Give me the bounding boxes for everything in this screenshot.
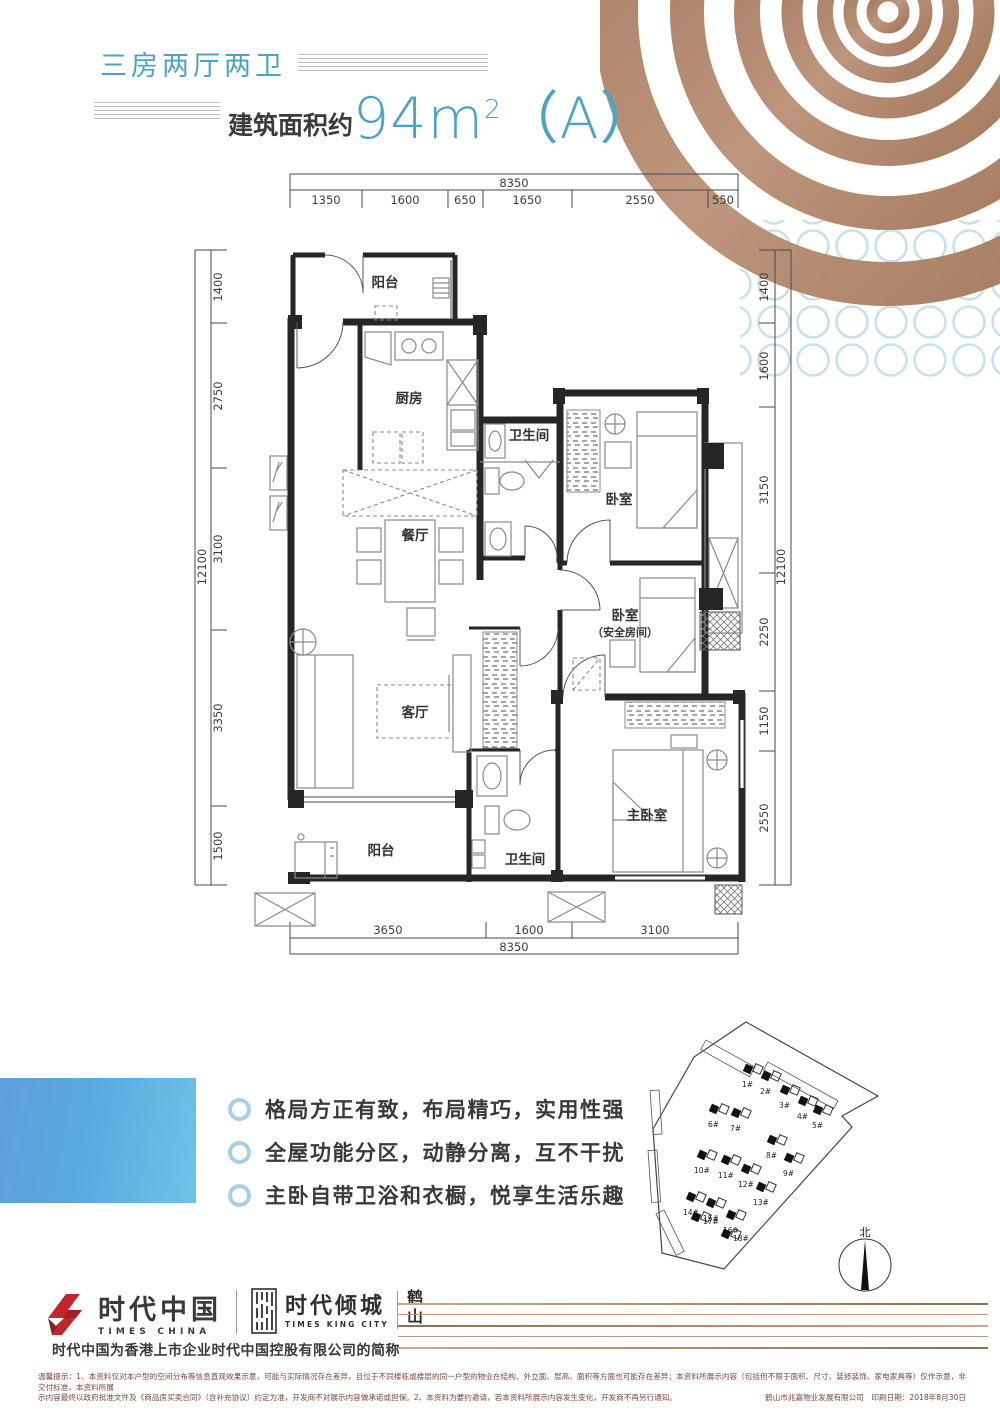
site-plan: 1# 2# 3# 4# 5# 6# 7# 8# 9# 10# 11# 12# 1… [630, 1010, 950, 1300]
label-bedroom2: 卧室 [612, 607, 640, 624]
area-label: 建筑面积约 [228, 106, 353, 148]
svg-text:8350: 8350 [499, 940, 528, 954]
decor-lines-2 [94, 102, 220, 122]
brand-divider [236, 1290, 237, 1334]
site-buildings: 1# 2# 3# 4# 5# 6# 7# 8# 9# 10# 11# 12# 1… [683, 1060, 833, 1243]
svg-text:3350: 3350 [211, 703, 225, 732]
disclaimer-line1: 温馨提示：1、本资料仅对本户型的空间分布等信息直观效果示意，可能与实际情况存在差… [38, 1372, 966, 1393]
label-bath2: 卫生间 [505, 851, 546, 868]
svg-text:13#: 13# [753, 1198, 769, 1207]
svg-text:2250: 2250 [757, 617, 771, 646]
label-bath1: 卫生间 [509, 427, 550, 444]
feature-item: 主卧自带卫浴和衣橱，悦享生活乐趣 [228, 1180, 625, 1210]
brand1: 时代中国 TIMES CHINA [98, 1288, 222, 1337]
disclaimer-line2: 鹤山市兆嘉物业发展有限公司 印刷日期：2018年8月30日 示内容最终以政府批准… [38, 1393, 966, 1404]
times-king-city-seal [251, 1288, 277, 1334]
svg-text:8350: 8350 [499, 176, 528, 190]
feature-item: 格局方正有致，布局精巧，实用性强 [228, 1094, 625, 1124]
svg-text:6#: 6# [708, 1120, 719, 1129]
svg-text:8#: 8# [766, 1151, 777, 1160]
svg-text:12100: 12100 [774, 549, 788, 586]
label-master: 主卧室 [627, 807, 668, 824]
svg-text:1600: 1600 [514, 923, 543, 937]
footer-brands: 时代中国 TIMES CHINA 时代倾城 TIMES KING CITY 鹤山 [40, 1288, 424, 1338]
svg-text:1#: 1# [742, 1080, 753, 1089]
svg-text:1600: 1600 [757, 351, 771, 380]
label-balcony-bottom: 阳台 [368, 842, 395, 859]
brand2: 时代倾城 TIMES KING CITY [285, 1288, 389, 1329]
svg-text:3100: 3100 [640, 923, 669, 937]
svg-text:3650: 3650 [373, 923, 402, 937]
svg-text:1350: 1350 [311, 193, 340, 207]
svg-text:3150: 3150 [757, 475, 771, 504]
svg-text:1400: 1400 [757, 272, 771, 301]
brand1-en: TIMES CHINA [98, 1327, 222, 1337]
label-balcony-top: 阳台 [372, 274, 399, 291]
svg-text:550: 550 [712, 193, 734, 207]
footer-tagline: 时代中国为香港上市企业时代中国控股有限公司的简称 [52, 1340, 400, 1360]
floorplan-page: 三房两厅两卫 建筑面积约 94m2（A） [0, 0, 1000, 1414]
svg-text:650: 650 [454, 193, 476, 207]
site-boundary [653, 1022, 878, 1269]
disclaimer-company: 鹤山市兆嘉物业发展有限公司 印刷日期：2018年8月30日 [765, 1393, 966, 1404]
footer-decor-lines [398, 1303, 988, 1351]
svg-text:7#: 7# [730, 1124, 741, 1133]
site-edge-strips [648, 1040, 838, 1255]
svg-text:12100: 12100 [195, 549, 209, 586]
north-needle [861, 1240, 869, 1290]
svg-text:2550: 2550 [625, 193, 654, 207]
svg-text:1600: 1600 [390, 193, 419, 207]
dim-top: 8350 1350 1600 650 1650 2550 550 [290, 174, 738, 208]
room-labels: 阳台 厨房 卫生间 卧室 餐厅 卧室 （安全房间） 客厅 主卧室 卫生间 阳台 [368, 274, 668, 868]
label-living: 客厅 [401, 704, 429, 721]
label-dining: 餐厅 [401, 527, 429, 544]
header: 三房两厅两卫 建筑面积约 94m2（A） [100, 44, 658, 148]
svg-text:3100: 3100 [211, 534, 225, 563]
dim-bottom: 3650 1600 3100 8350 [290, 922, 738, 954]
feature-item: 全屋功能分区，动静分离，互不干扰 [228, 1137, 625, 1167]
svg-text:1150: 1150 [757, 706, 771, 735]
label-kitchen: 厨房 [396, 390, 423, 407]
svg-text:5#: 5# [812, 1121, 823, 1130]
bullet-icon [228, 1141, 251, 1164]
svg-text:2#: 2# [760, 1087, 771, 1096]
svg-text:18#: 18# [733, 1234, 749, 1243]
label-bedroom1: 卧室 [606, 491, 634, 508]
dim-right: 12100 1400 1600 3150 2250 1150 2550 [757, 250, 791, 885]
svg-text:4#: 4# [797, 1112, 808, 1121]
dim-left: 12100 1400 2750 3100 3350 1500 [195, 250, 227, 885]
feature-list: 格局方正有致，布局精巧，实用性强 全屋功能分区，动静分离，互不干扰 主卧自带卫浴… [228, 1094, 625, 1223]
disclaimer: 温馨提示：1、本资料仅对本户型的空间分布等信息直观效果示意，可能与实际情况存在差… [38, 1372, 966, 1404]
bullet-icon [228, 1098, 251, 1121]
brand2-cn: 时代倾城 [285, 1288, 389, 1320]
bullet-icon [228, 1184, 251, 1207]
svg-text:1500: 1500 [211, 831, 225, 860]
svg-text:17#: 17# [703, 1217, 719, 1226]
brand2-en: TIMES KING CITY [285, 1320, 389, 1329]
furniture [290, 278, 727, 878]
svg-text:3#: 3# [779, 1101, 790, 1110]
north-compass: 北 [839, 1226, 891, 1291]
blue-accent-box [0, 1078, 196, 1203]
unit-type-title: 三房两厅两卫 [100, 44, 286, 83]
floorplan-drawing: 8350 1350 1600 650 1650 2550 550 12100 1… [185, 160, 885, 1020]
brand1-cn: 时代中国 [98, 1288, 222, 1327]
svg-text:9#: 9# [783, 1169, 794, 1178]
area-value: 94m2（A） [353, 91, 658, 148]
north-label: 北 [860, 1226, 871, 1239]
svg-text:2550: 2550 [757, 803, 771, 832]
svg-text:12#: 12# [738, 1180, 754, 1189]
svg-text:10#: 10# [694, 1166, 710, 1175]
svg-text:1400: 1400 [211, 272, 225, 301]
label-bedroom2-sub: （安全房间） [592, 625, 658, 639]
decor-lines-1 [298, 54, 488, 74]
svg-text:1650: 1650 [512, 193, 541, 207]
svg-text:2750: 2750 [211, 381, 225, 410]
times-china-logo [40, 1288, 90, 1338]
svg-text:11#: 11# [718, 1171, 734, 1180]
